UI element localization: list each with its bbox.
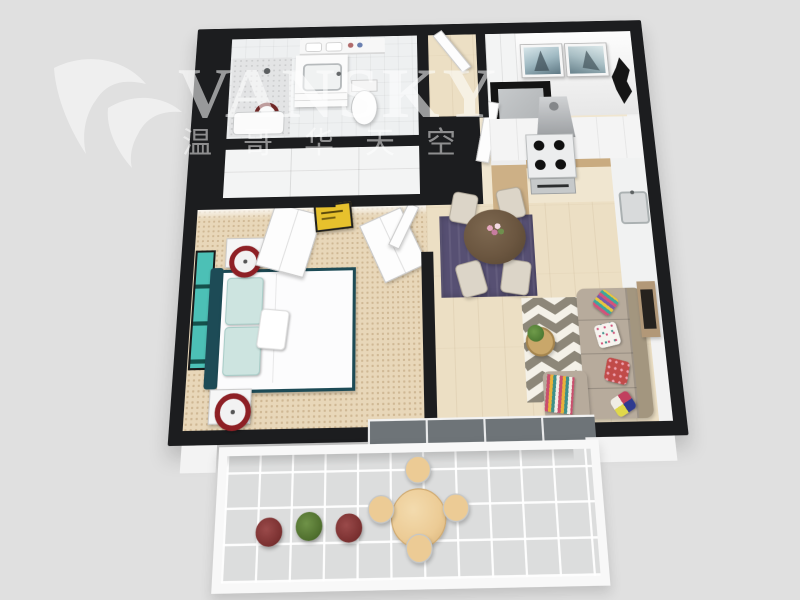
closet-divider [358, 147, 359, 195]
balcony [211, 439, 610, 594]
oven [530, 178, 576, 195]
bed-pillow [222, 326, 262, 376]
burner [533, 140, 544, 150]
flower-centerpiece [483, 221, 506, 239]
apartment-3d-plan [158, 20, 704, 577]
floorplan-render: VANSKY 温哥华天空 [0, 0, 800, 600]
patio-stool [406, 534, 433, 564]
toiletry-item [357, 43, 363, 48]
sign-marking [322, 216, 336, 220]
patio-stool [405, 455, 432, 483]
dining-chair [500, 258, 532, 296]
bed-pillow [225, 277, 264, 325]
burner [554, 140, 565, 150]
burner [535, 160, 546, 170]
sailboat-picture-canvas [568, 46, 606, 74]
tv-screen [640, 289, 656, 329]
closet-shelf-line [224, 168, 425, 173]
sink [302, 63, 342, 91]
sofa-seam [581, 352, 633, 354]
sail-shape [533, 50, 549, 71]
lamp-finial [231, 410, 235, 415]
sailboat-picture-canvas [524, 47, 561, 75]
potted-plant [335, 513, 362, 543]
swan-logo-icon [46, 50, 196, 170]
kitchen-sink [618, 191, 650, 224]
sofa-seam [584, 387, 637, 389]
vanity-drawer-seam [295, 92, 348, 94]
apartment-unit [168, 20, 689, 446]
wardrobe-nook [223, 146, 426, 198]
vanity-drawer-seam [295, 99, 348, 101]
stove-cooktop [525, 134, 577, 179]
lamp-finial [243, 260, 247, 264]
door-seam [278, 210, 298, 271]
bathroom [226, 36, 419, 139]
potted-plant [255, 517, 283, 547]
oven-door-slot [537, 184, 569, 187]
faucet-icon [630, 190, 634, 194]
toiletry-item [348, 43, 354, 48]
shower-head-icon [264, 68, 271, 74]
toilet [351, 90, 378, 126]
bathroom-vanity [294, 55, 347, 108]
sail-shape [581, 50, 600, 71]
burner [555, 159, 566, 169]
closet-divider [290, 148, 292, 196]
diamond-wall-art [610, 57, 634, 104]
laundry-shelf [300, 38, 385, 56]
patio-stool [442, 493, 469, 522]
sign-marking [321, 210, 343, 215]
towel-roll [326, 42, 343, 52]
sailboat-picture [520, 43, 565, 78]
shower [228, 57, 292, 137]
balcony-shadow [227, 449, 574, 468]
sailboat-picture [564, 42, 610, 77]
exterior-wall-base [180, 445, 217, 473]
throw-blanket [545, 374, 575, 415]
potted-plant [295, 512, 322, 542]
towel-roll [305, 43, 322, 53]
wall-bedroom-north [378, 194, 426, 206]
bed-accent-pillow [256, 308, 290, 350]
hood-vent [549, 102, 559, 111]
sofa-seam [578, 319, 630, 321]
shower-tray [232, 111, 284, 135]
